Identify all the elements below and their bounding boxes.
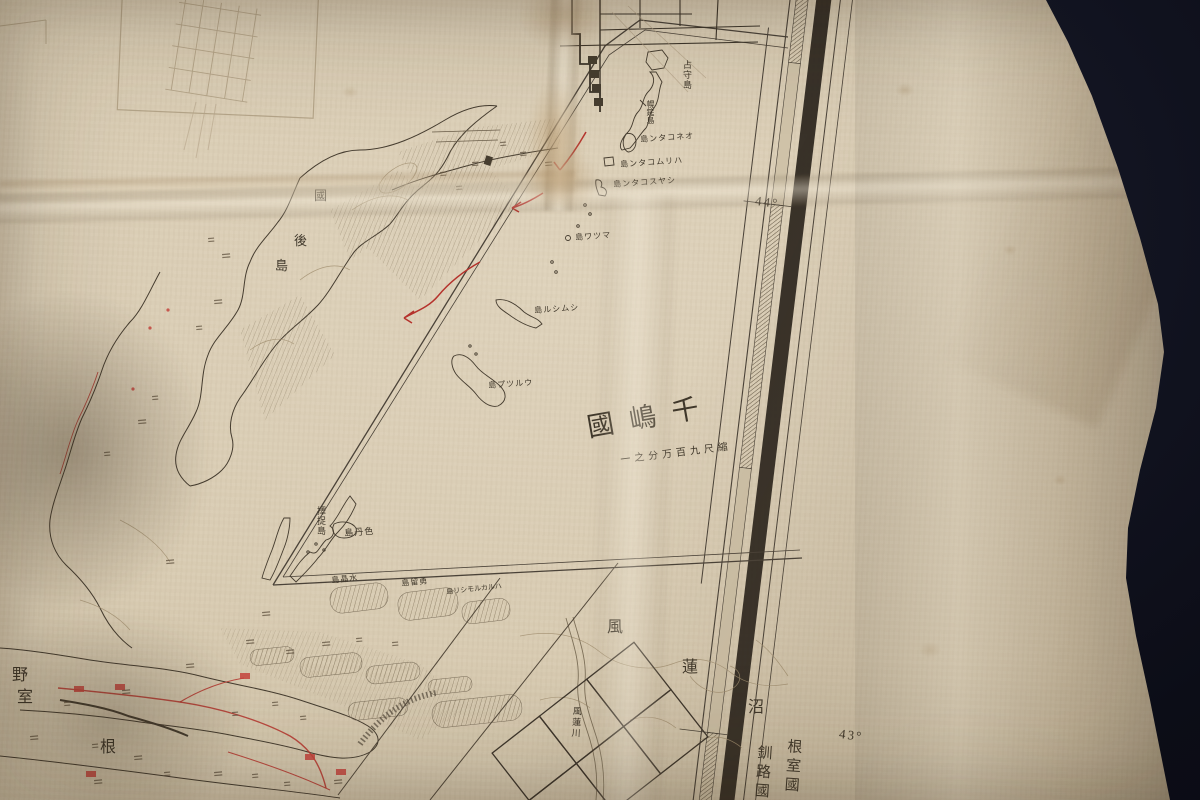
- island-shikotan-label: 島丹色: [344, 527, 375, 538]
- inset-title-label: 國嶋千: [585, 393, 717, 442]
- red-town-marks: [74, 308, 346, 777]
- island-shumushu-label: 占守島: [682, 60, 691, 90]
- inset-scale-note-label: 一之分万百九尺縮: [620, 442, 732, 466]
- kuril-islands: [262, 50, 668, 582]
- map-labels: 國嶋千一之分万百九尺縮44°43°占守島幌筵島島ンタコネオ島ンタコムリハ島ンタコ…: [0, 0, 1200, 800]
- habomai-harukarumoshiri-label: 島リシモルカルハ: [446, 583, 502, 596]
- survey-grid: [492, 642, 708, 800]
- main-map-coastlines: [0, 106, 558, 798]
- province-kushiro-label: 釧路國: [752, 744, 771, 800]
- paper-foxing-spots: [0, 0, 1200, 800]
- province-nemuro-label: 根室國: [782, 738, 801, 796]
- lat-44-label: 44°: [754, 194, 780, 210]
- island-urup-label: 島プツルウ: [488, 379, 533, 390]
- island-paramushir-label: 幌筵島: [646, 100, 654, 124]
- island-etorofu-label: 擇捉島: [316, 506, 325, 536]
- island-onekotan-label: 島ンタコネオ: [640, 132, 694, 144]
- nemuro-char-no-label: 野: [12, 668, 28, 684]
- town-plan-grid: [432, 0, 760, 166]
- kunashiri-char-kuni-label: 國: [314, 189, 327, 202]
- island-shimushir-label: 島ルシムシ: [534, 304, 579, 315]
- map-linework: [0, 0, 1200, 800]
- red-annotations: [58, 132, 586, 790]
- habomai-yuri-label: 島留勇: [401, 577, 429, 588]
- island-shasukotan-label: 島ンタコスヤシ: [613, 177, 676, 189]
- photo-of-antique-map: 國嶋千一之分万百九尺縮44°43°占守島幌筵島島ンタコネオ島ンタコムリハ島ンタコ…: [0, 0, 1200, 800]
- map-paper-sheet: 國嶋千一之分万百九尺縮44°43°占守島幌筵島島ンタコネオ島ンタコムリハ島ンタコ…: [0, 0, 1200, 800]
- furen-char-numa-label: 沼: [748, 700, 764, 716]
- graticule-border: [669, 0, 854, 800]
- illegible-small-labels: [30, 141, 552, 786]
- furen-char-ren-label: 蓮: [682, 660, 698, 676]
- fold-creases: [0, 0, 1200, 800]
- photo-vignette: [0, 0, 1200, 800]
- furen-char-fu-label: 風: [607, 620, 623, 636]
- chishima-inset-border: [273, 20, 802, 585]
- boundary-lines: [338, 563, 618, 800]
- nemuro-char-ne-label: 根: [100, 740, 116, 756]
- kunashiri-char-shima-label: 島: [275, 259, 288, 272]
- lat-43-label: 43°: [838, 727, 864, 743]
- habomai-suisho-label: 島晶水: [331, 574, 359, 585]
- sea-hatching: [220, 118, 560, 740]
- habomai-islets: [249, 582, 523, 729]
- nemuro-char-muro-label: 室: [17, 690, 33, 706]
- island-harimkotan-label: 島ンタコムリハ: [620, 157, 683, 169]
- furen-river: [566, 617, 604, 800]
- furen-river-label: 風蓮川: [570, 706, 581, 739]
- kunashiri-char-go-label: 後: [294, 234, 307, 247]
- contour-lines: [80, 157, 788, 748]
- paper-texture: [0, 0, 1200, 800]
- faint-inset-grid: [0, 0, 319, 158]
- island-matsuwa-label: 島ワツマ: [575, 231, 611, 241]
